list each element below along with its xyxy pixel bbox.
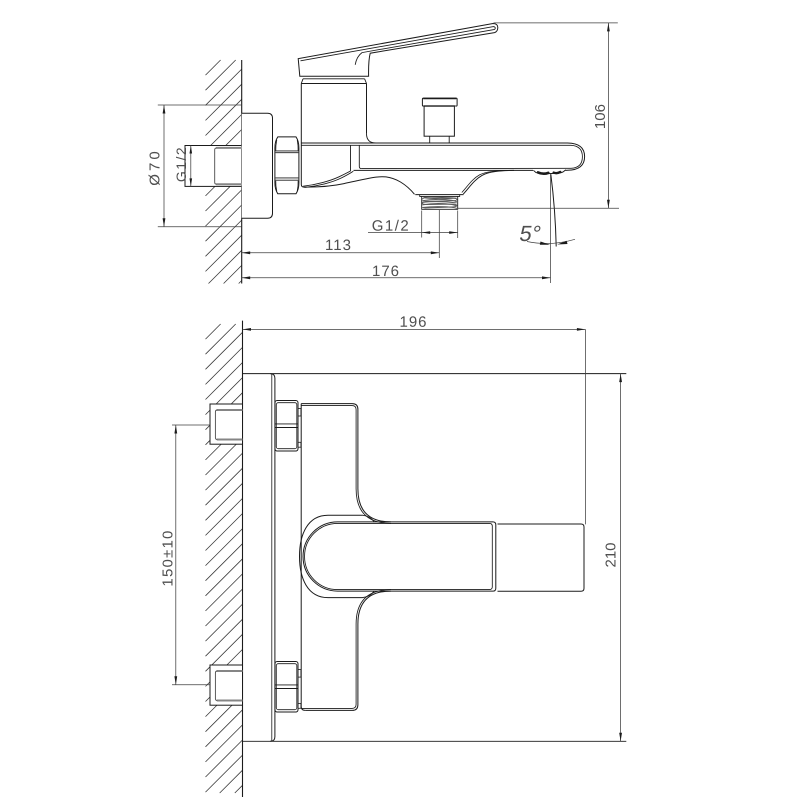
svg-text:113: 113	[325, 237, 352, 254]
svg-text:G1/2: G1/2	[372, 218, 411, 235]
svg-text:5°: 5°	[518, 221, 543, 246]
svg-text:210: 210	[603, 542, 620, 567]
svg-text:Ø70: Ø70	[147, 148, 164, 185]
svg-text:G1/2: G1/2	[173, 146, 189, 182]
svg-text:150±10: 150±10	[160, 529, 177, 586]
svg-text:196: 196	[399, 314, 427, 331]
svg-text:176: 176	[372, 263, 400, 280]
svg-text:106: 106	[592, 104, 609, 129]
